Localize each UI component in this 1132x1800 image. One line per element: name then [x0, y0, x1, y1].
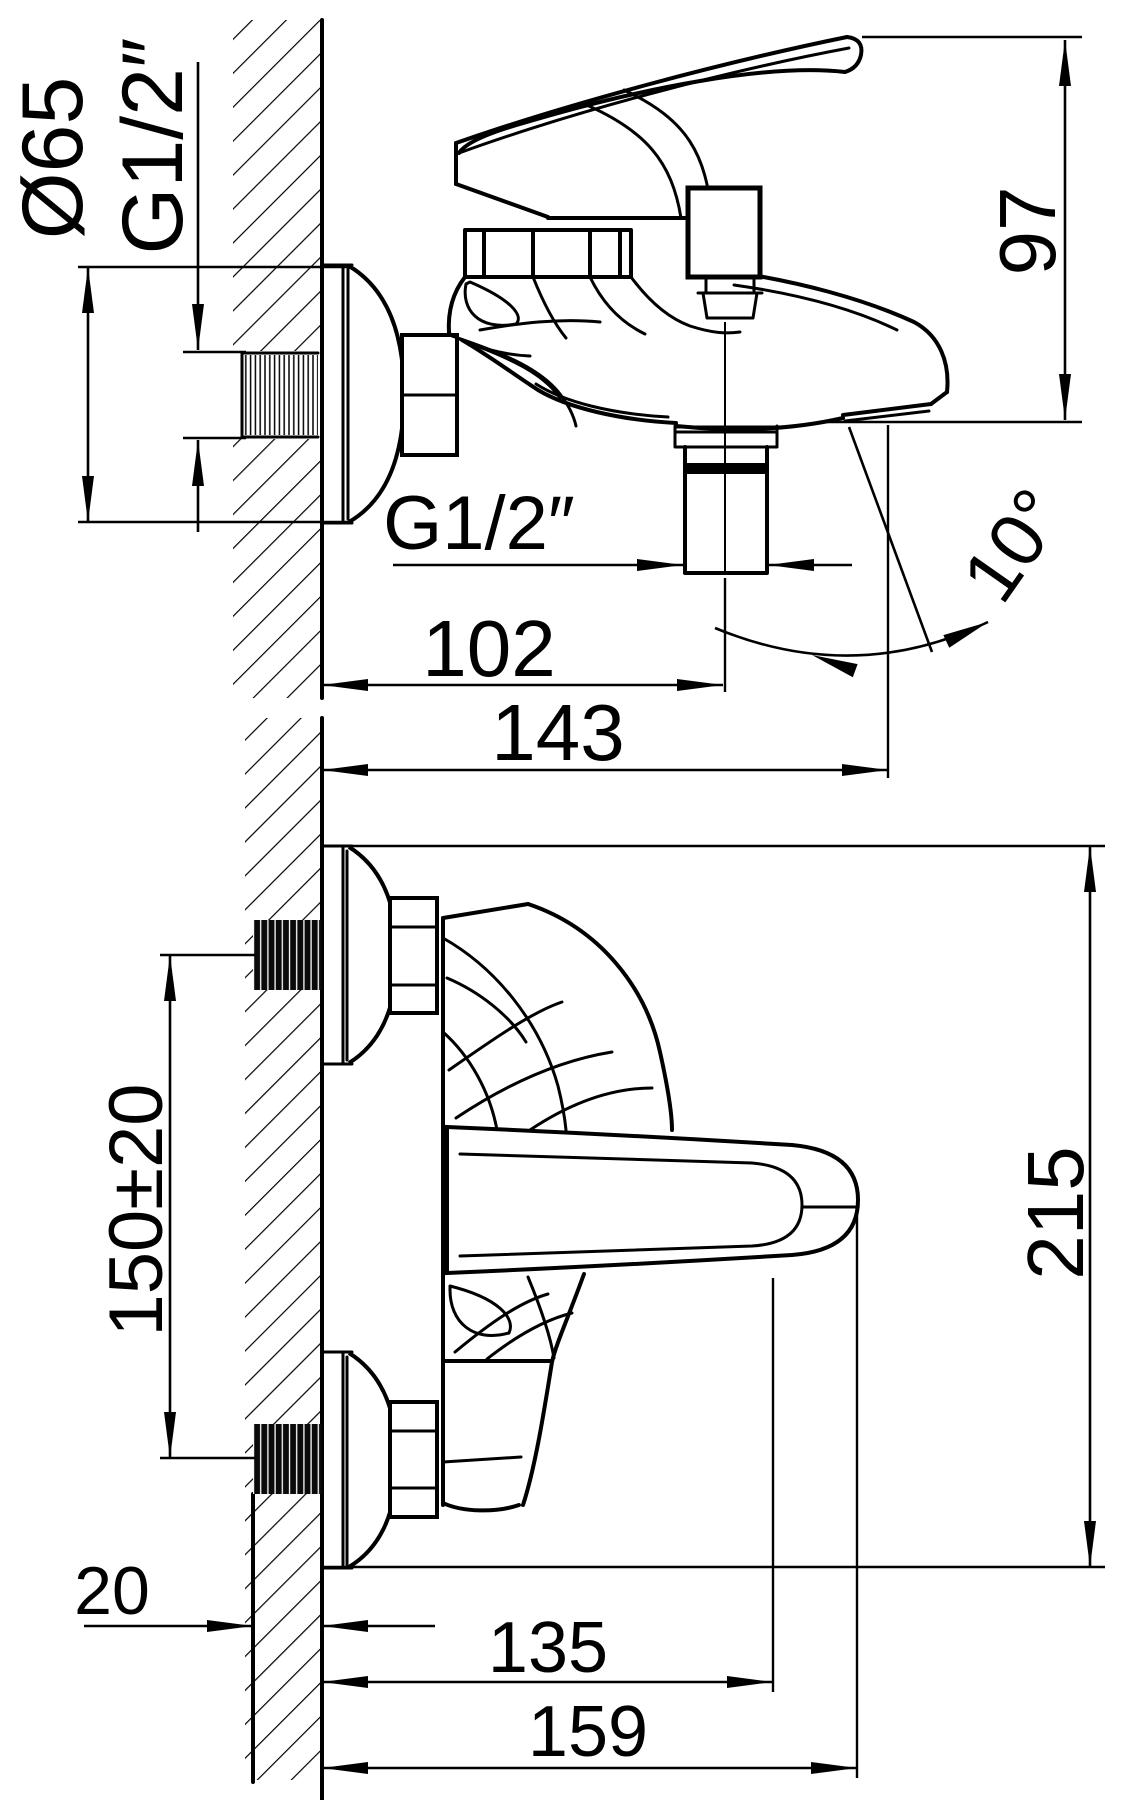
mixer-installation-drawing: Ø65 G1/2″ 97 G1/2″ 102 [0, 0, 1132, 1800]
escutcheon-top-front [322, 846, 397, 1064]
diverter-knob-side [688, 188, 762, 318]
body-web-side [449, 277, 740, 426]
mounting-nut-bottom-front [390, 1402, 437, 1517]
wall-thread-side [242, 353, 318, 437]
wall-hatch-front [245, 718, 322, 1780]
dim-angle-10: 10° [715, 427, 1082, 677]
lever-handle-front [447, 1127, 858, 1273]
dim-label-20: 20 [74, 1553, 150, 1629]
shower-outlet-side [675, 322, 777, 573]
front-view: 150±20 215 20 135 159 [74, 718, 1105, 1800]
dim-label-143: 143 [491, 688, 624, 777]
dim-label-g12-wall: G1/2″ [105, 38, 201, 255]
escutcheon-bottom-front [322, 1352, 397, 1568]
dim-span-150: 150±20 [94, 955, 255, 1458]
body-lower-front [443, 1274, 584, 1510]
dim-label-102: 102 [422, 604, 555, 693]
dim-height-97: 97 [827, 37, 1082, 422]
dim-label-10deg: 10° [946, 474, 1082, 617]
wall-thread-bottom-front [253, 1424, 322, 1494]
dim-label-159: 159 [528, 1692, 648, 1772]
dim-label-97: 97 [983, 187, 1072, 276]
drawing-page: Ø65 G1/2″ 97 G1/2″ 102 [0, 0, 1132, 1800]
cartridge-ring-side [465, 230, 631, 277]
dim-label-dia65: Ø65 [5, 77, 101, 240]
mounting-nut-side [402, 335, 457, 455]
wall-thread-top-front [253, 920, 322, 990]
dim-outlet-thread: G1/2″ [383, 481, 852, 566]
dim-length-143: 143 [322, 425, 888, 778]
dim-length-102: 102 [322, 578, 725, 693]
dim-label-135: 135 [488, 1608, 608, 1688]
dim-label-215: 215 [1011, 1146, 1100, 1279]
dim-wall-thread: G1/2″ [105, 38, 246, 532]
dim-label-150: 150±20 [94, 1083, 179, 1336]
side-view: Ø65 G1/2″ 97 G1/2″ 102 [5, 20, 1082, 778]
mounting-nut-top-front [390, 898, 437, 1013]
dim-label-g12-outlet: G1/2″ [383, 481, 575, 566]
